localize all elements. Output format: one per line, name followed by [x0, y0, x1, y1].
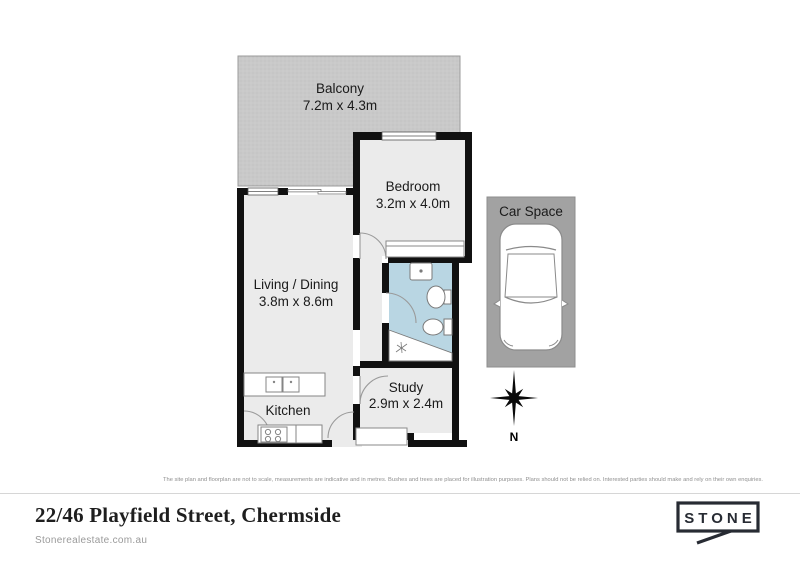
- toilet-cistern: [444, 319, 452, 335]
- floorplan-page: Balcony 7.2m x 4.3m Car Space: [0, 0, 800, 565]
- living-dims: 3.8m x 8.6m: [259, 294, 333, 309]
- study-desk-icon: [356, 428, 407, 445]
- bedroom-label: Bedroom: [386, 179, 441, 194]
- kitchen-label: Kitchen: [265, 403, 310, 418]
- agency-website: Stonerealestate.com.au: [35, 535, 147, 546]
- stone-logo: STONE: [675, 500, 767, 551]
- stove-icon: [261, 427, 287, 442]
- compass-star-icon: [490, 370, 538, 426]
- study-label: Study: [389, 380, 424, 395]
- living-label: Living / Dining: [254, 277, 339, 292]
- basin-icon: [427, 286, 445, 308]
- footer-bar: 22/46 Playfield Street, Chermside Stoner…: [0, 493, 800, 565]
- property-address: 22/46 Playfield Street, Chermside: [35, 503, 341, 528]
- kitchen-sink-left: [266, 377, 282, 392]
- bedroom-dims: 3.2m x 4.0m: [376, 196, 450, 211]
- toilet-icon: [423, 319, 443, 335]
- stone-logo-icon: STONE: [675, 500, 767, 546]
- balcony-label: Balcony: [316, 81, 364, 96]
- balcony-dims: 7.2m x 4.3m: [303, 98, 377, 113]
- floorplan-drawing: Balcony 7.2m x 4.3m Car Space: [0, 0, 800, 490]
- wardrobe-icon: [386, 241, 464, 257]
- stone-logo-text: STONE: [684, 510, 755, 527]
- kitchen-sink-right: [283, 377, 299, 392]
- car-space-label: Car Space: [499, 204, 563, 219]
- disclaimer-text: The site plan and floorplan are not to s…: [163, 477, 763, 483]
- car-space-area: Car Space: [487, 197, 575, 367]
- car-graphic: [494, 224, 568, 350]
- north-label: N: [510, 430, 519, 444]
- study-dims: 2.9m x 2.4m: [369, 396, 443, 411]
- compass: N: [490, 370, 538, 444]
